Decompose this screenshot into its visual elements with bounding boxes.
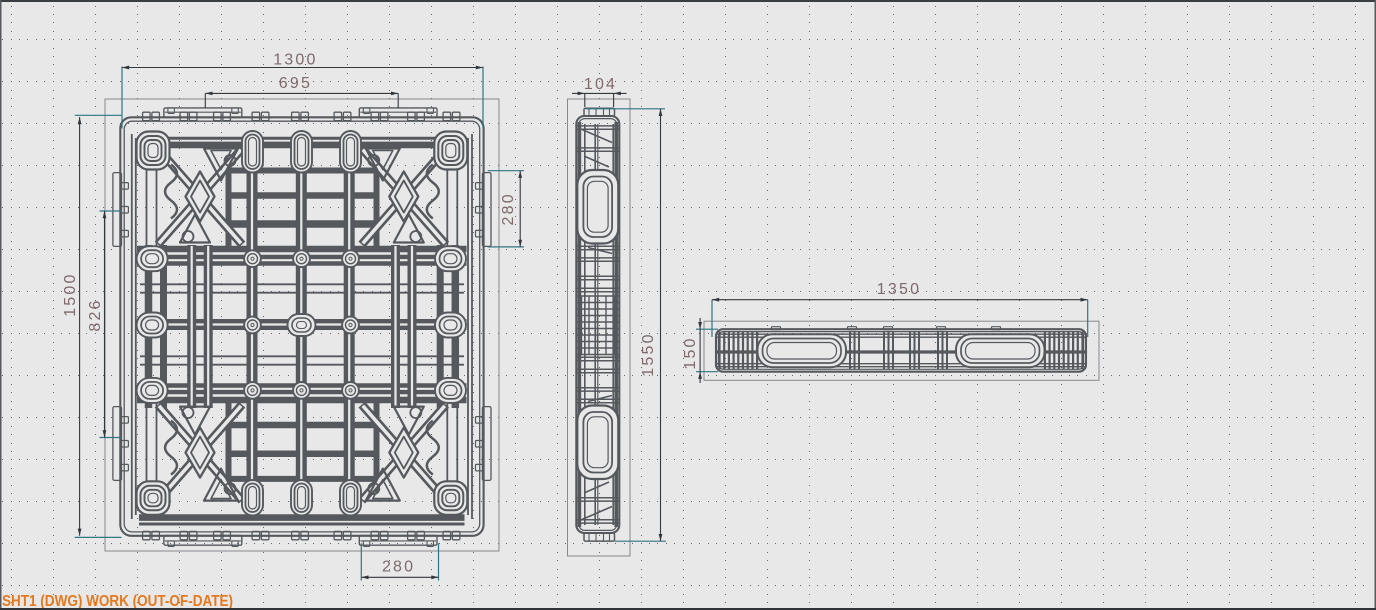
- svg-text:280: 280: [500, 192, 517, 225]
- svg-text:826: 826: [87, 298, 104, 331]
- svg-text:SHT1 (DWG) WORK (OUT-OF-DATE): SHT1 (DWG) WORK (OUT-OF-DATE): [2, 593, 233, 610]
- svg-text:1500: 1500: [62, 272, 79, 316]
- svg-text:280: 280: [382, 559, 415, 576]
- svg-text:695: 695: [279, 75, 312, 92]
- svg-text:1550: 1550: [640, 332, 657, 376]
- svg-text:1350: 1350: [877, 281, 921, 298]
- svg-text:150: 150: [682, 336, 699, 369]
- svg-text:1300: 1300: [273, 52, 317, 69]
- svg-text:104: 104: [584, 76, 617, 93]
